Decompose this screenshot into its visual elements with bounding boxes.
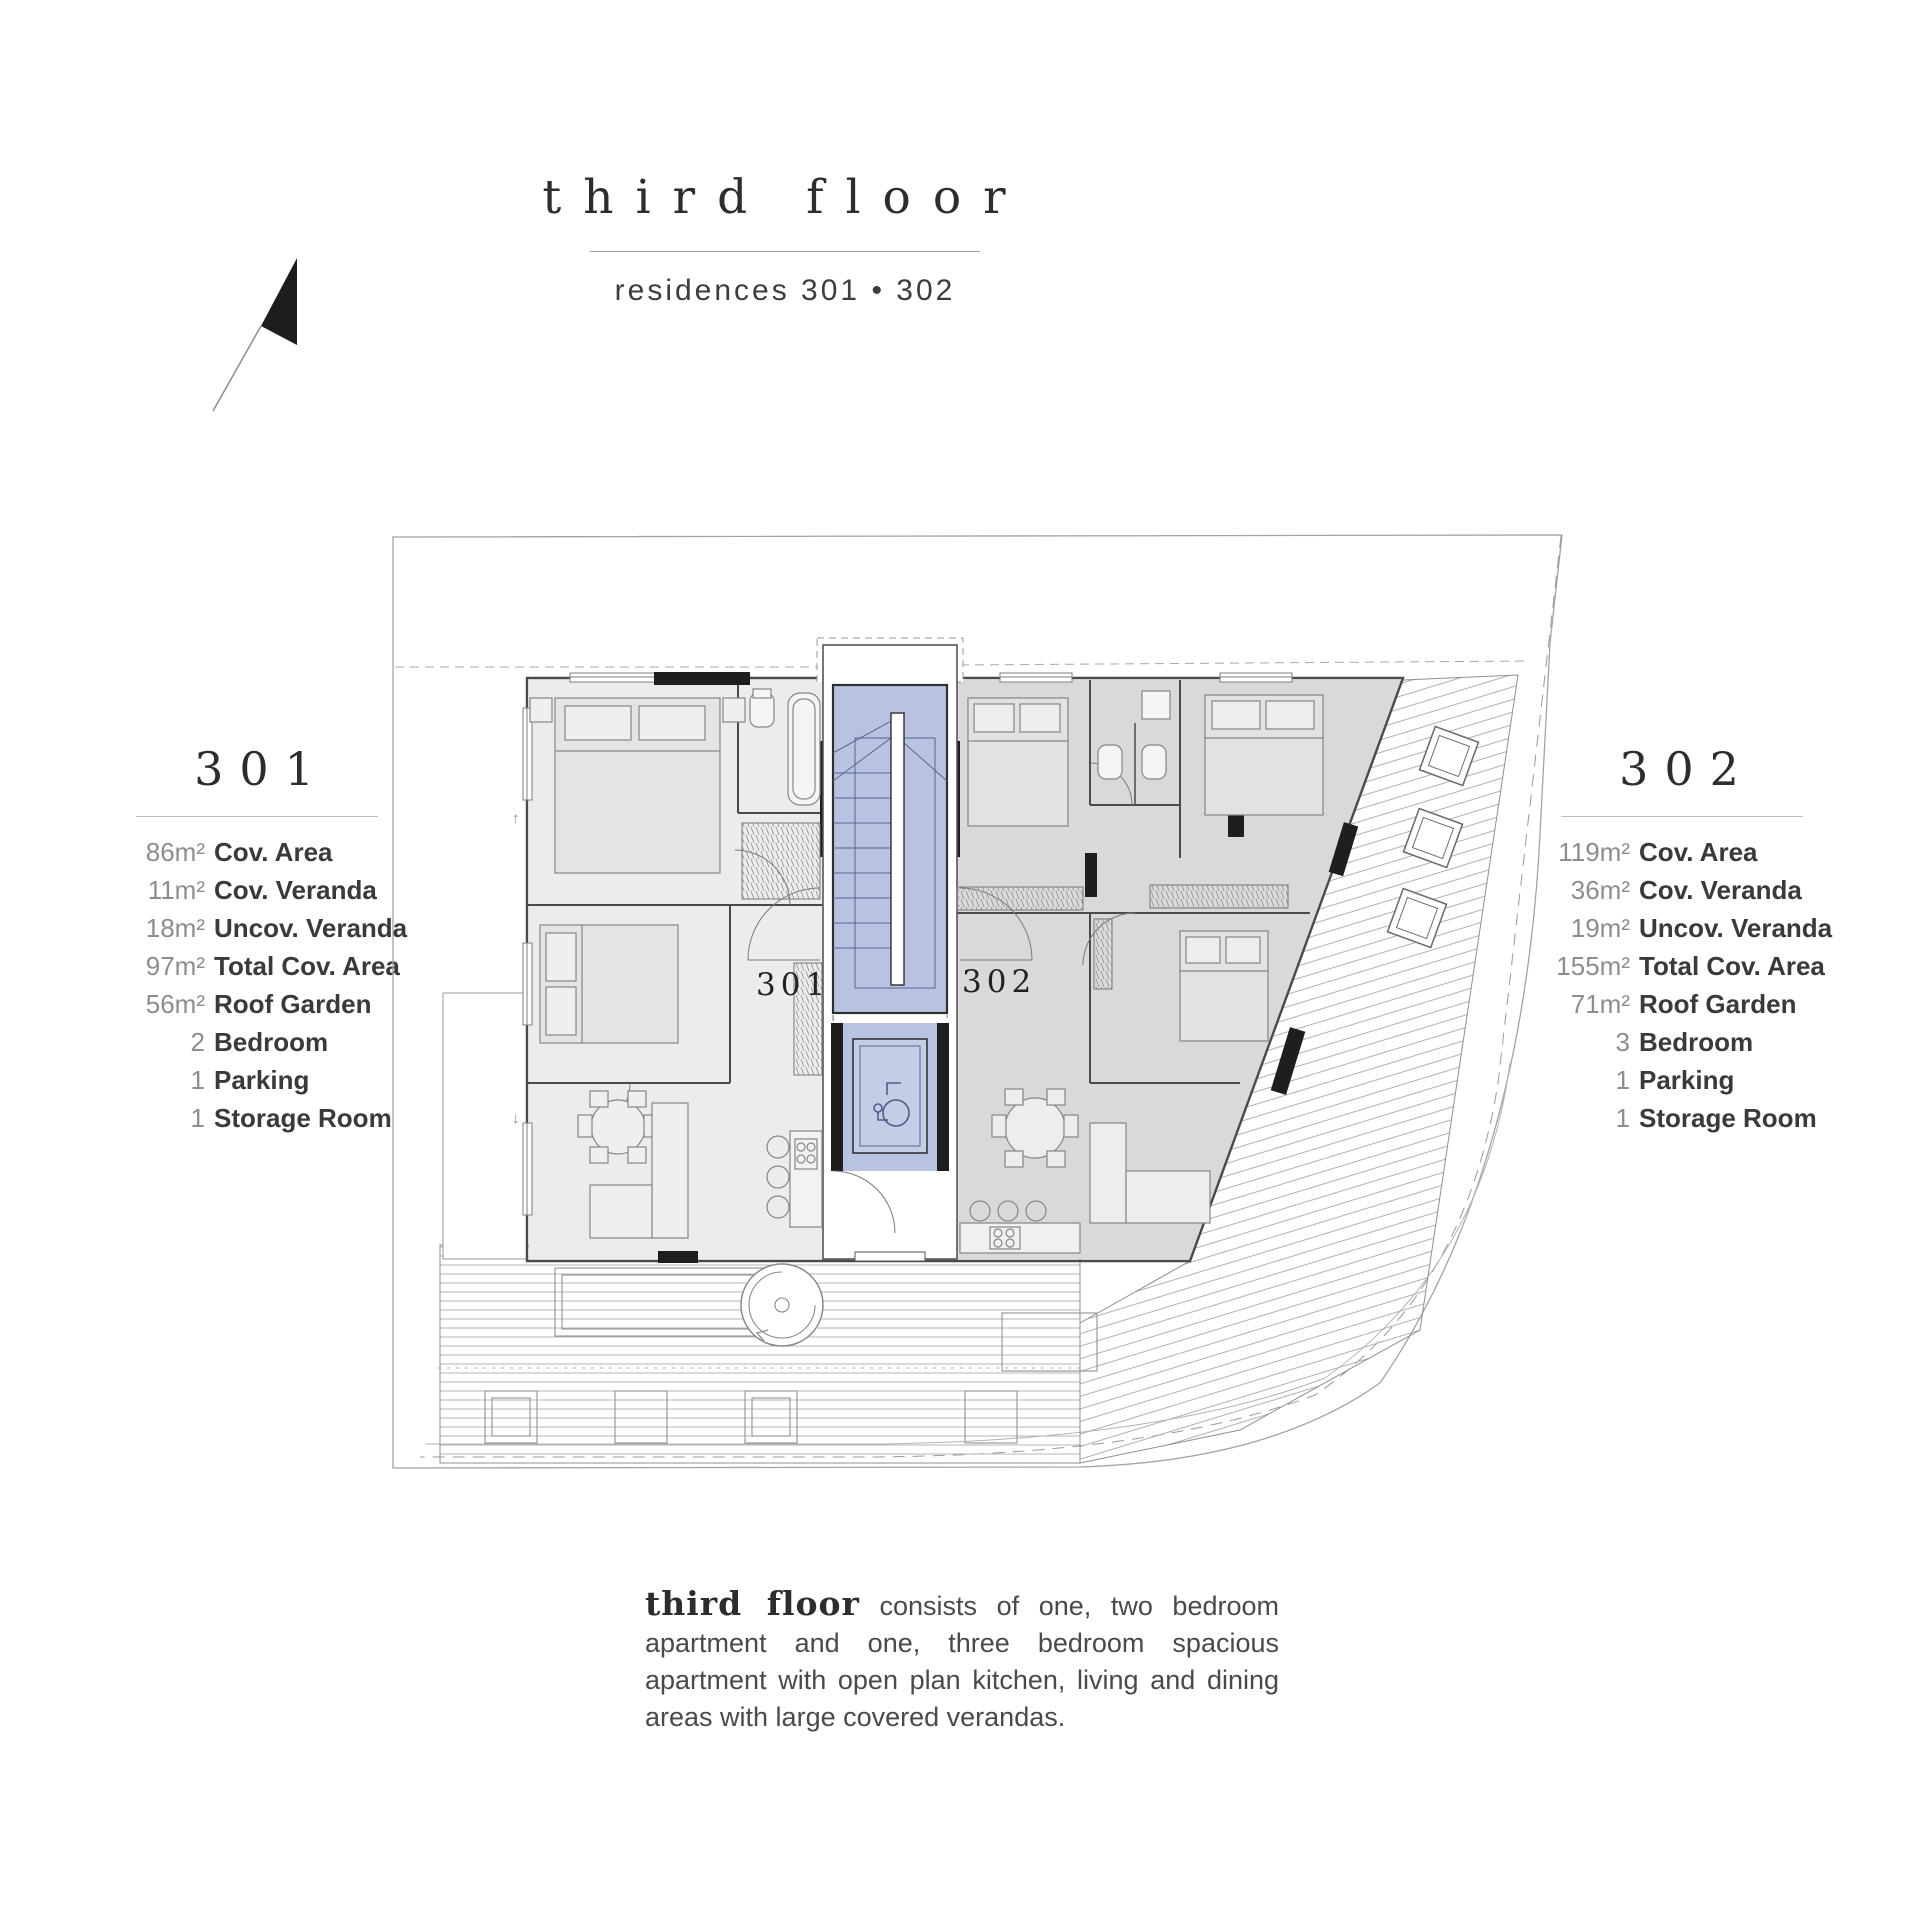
spec-value: 18m² bbox=[117, 909, 205, 947]
floor-plan-page: third floor residences 301 • 302 301 86m… bbox=[0, 0, 1920, 1920]
spec-row: 1Storage Room bbox=[1542, 1099, 1822, 1137]
spec-value: 1 bbox=[117, 1099, 205, 1137]
spec-row: 1Parking bbox=[1542, 1061, 1822, 1099]
unit-302-title: 302 bbox=[1542, 742, 1822, 796]
spec-label: Cov. Area bbox=[1639, 833, 1822, 871]
spec-value: 86m² bbox=[117, 833, 205, 871]
spec-row: 19m²Uncov. Veranda bbox=[1542, 909, 1822, 947]
unit-panel-302: 302 119m²Cov. Area 36m²Cov. Veranda 19m²… bbox=[1542, 742, 1822, 1137]
spec-value: 2 bbox=[117, 1023, 205, 1061]
unit-panel-301: 301 86m²Cov. Area 11m²Cov. Veranda 18m²U… bbox=[117, 742, 397, 1137]
spec-label: Cov. Veranda bbox=[214, 871, 397, 909]
plan-label-302: 302 bbox=[962, 964, 1036, 1000]
spec-label: Storage Room bbox=[214, 1099, 397, 1137]
spec-label: Cov. Veranda bbox=[1639, 871, 1822, 909]
spec-label: Bedroom bbox=[1639, 1023, 1822, 1061]
svg-text:↓: ↓ bbox=[512, 1110, 520, 1127]
floor-description: third floor consists of one, two bedroom… bbox=[645, 1585, 1279, 1736]
stairwell-highlight bbox=[833, 685, 947, 1013]
spec-row: 2Bedroom bbox=[117, 1023, 397, 1061]
spec-label: Bedroom bbox=[214, 1023, 397, 1061]
spec-row: 1Storage Room bbox=[117, 1099, 397, 1137]
stair-core bbox=[817, 638, 963, 1261]
spec-label: Parking bbox=[1639, 1061, 1822, 1099]
spec-label: Total Cov. Area bbox=[214, 947, 400, 985]
spec-row: 18m²Uncov. Veranda bbox=[117, 909, 397, 947]
spec-value: 97m² bbox=[117, 947, 205, 985]
spec-label: Roof Garden bbox=[214, 985, 397, 1023]
unit-301-divider bbox=[136, 816, 378, 817]
spec-row: 56m²Roof Garden bbox=[117, 985, 397, 1023]
spec-row: 3Bedroom bbox=[1542, 1023, 1822, 1061]
spec-label: Storage Room bbox=[1639, 1099, 1822, 1137]
spec-row: 1Parking bbox=[117, 1061, 397, 1099]
spec-row: 36m²Cov. Veranda bbox=[1542, 871, 1822, 909]
spec-label: Uncov. Veranda bbox=[214, 909, 407, 947]
unit-301-spec-list: 86m²Cov. Area 11m²Cov. Veranda 18m²Uncov… bbox=[117, 833, 397, 1137]
description-lead: third floor bbox=[645, 1584, 860, 1623]
spec-value: 11m² bbox=[117, 871, 205, 909]
spec-row: 86m²Cov. Area bbox=[117, 833, 397, 871]
svg-text:↑: ↑ bbox=[512, 810, 520, 827]
page-subtitle: residences 301 • 302 bbox=[485, 274, 1085, 308]
page-title: third floor bbox=[485, 170, 1085, 225]
spec-value: 1 bbox=[117, 1061, 205, 1099]
title-divider bbox=[590, 251, 980, 252]
unit-302-divider bbox=[1561, 816, 1803, 817]
plan-label-301: 301 bbox=[756, 967, 830, 1003]
spec-row: 119m²Cov. Area bbox=[1542, 833, 1822, 871]
unit-302-spec-list: 119m²Cov. Area 36m²Cov. Veranda 19m²Unco… bbox=[1542, 833, 1822, 1137]
spec-label: Cov. Area bbox=[214, 833, 397, 871]
spec-row: 11m²Cov. Veranda bbox=[117, 871, 397, 909]
spec-row: 97m²Total Cov. Area bbox=[117, 947, 397, 985]
spec-row: 155m²Total Cov. Area bbox=[1542, 947, 1822, 985]
spec-label: Uncov. Veranda bbox=[1639, 909, 1832, 947]
floor-plan-drawing: ↑ ↓ bbox=[390, 523, 1570, 1490]
spec-value: 56m² bbox=[117, 985, 205, 1023]
spec-row: 71m²Roof Garden bbox=[1542, 985, 1822, 1023]
spec-label: Total Cov. Area bbox=[1639, 947, 1825, 985]
spec-label: Roof Garden bbox=[1639, 985, 1822, 1023]
north-arrow-icon bbox=[170, 228, 310, 428]
header: third floor residences 301 • 302 bbox=[485, 170, 1085, 308]
unit-301-title: 301 bbox=[117, 742, 397, 796]
spec-label: Parking bbox=[214, 1061, 397, 1099]
